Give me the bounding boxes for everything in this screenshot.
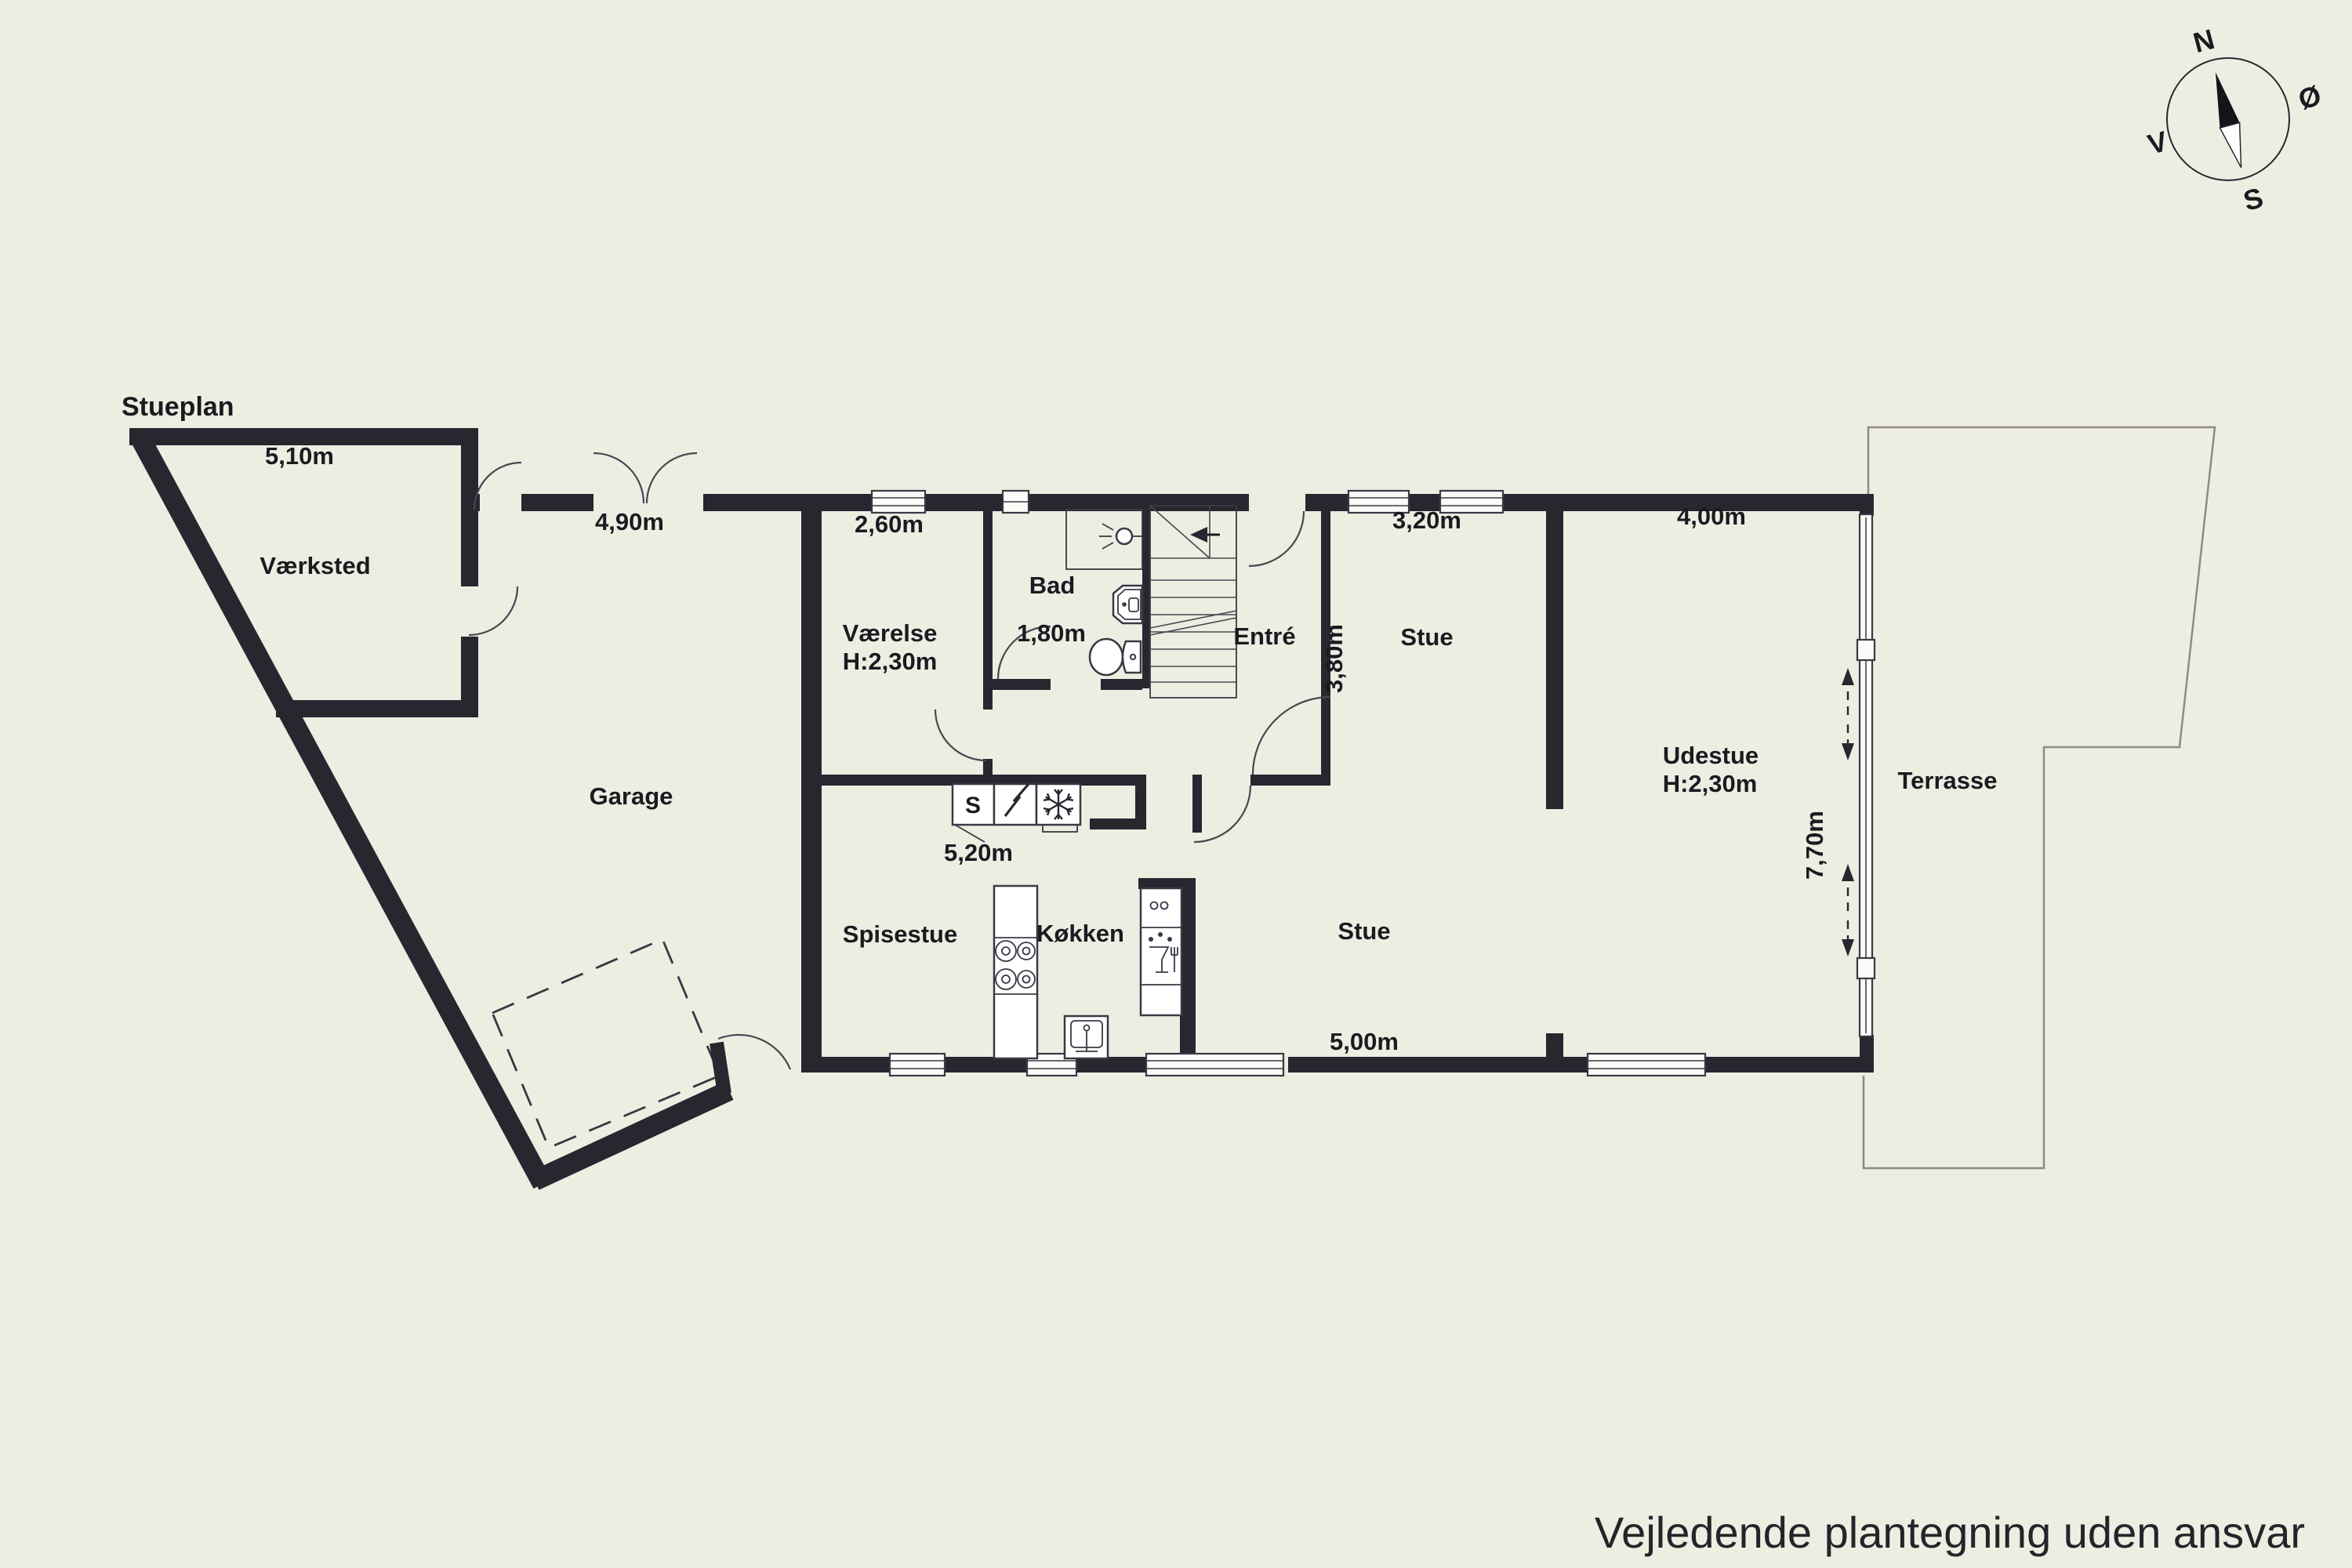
disclaimer-text: Vejledende plantegning uden ansvar bbox=[1595, 1508, 2305, 1557]
room-label-garage: Garage bbox=[590, 782, 673, 810]
compass-west-label: V bbox=[2144, 125, 2171, 161]
dim-spisestue-width: 5,20m bbox=[944, 839, 1013, 866]
window-icon bbox=[1146, 1054, 1283, 1076]
garage-side-door-arc bbox=[474, 463, 521, 510]
window-icon bbox=[1588, 1054, 1705, 1076]
room-label-vaerelse: Værelse bbox=[843, 619, 938, 647]
room-label-bad: Bad bbox=[1029, 572, 1076, 599]
terrasse-outline bbox=[1864, 427, 2215, 1168]
room-label-vaerksted: Værksted bbox=[260, 552, 370, 579]
window-icon bbox=[890, 1054, 945, 1076]
compass-south-label: S bbox=[2240, 181, 2267, 217]
dim-stue-lower-width: 5,00m bbox=[1330, 1028, 1399, 1055]
dim-udestue-width: 4,00m bbox=[1677, 503, 1746, 530]
entry-door-arc bbox=[1249, 511, 1304, 566]
stairs-direction-arrow-icon bbox=[1190, 527, 1220, 543]
room-label-terrasse: Terrasse bbox=[1898, 767, 1998, 794]
garage-double-door-right-arc bbox=[647, 453, 697, 503]
dim-garage-width: 4,90m bbox=[595, 508, 664, 535]
stue-door-arc bbox=[1253, 697, 1330, 775]
compass-rose-icon: N Ø S V bbox=[2144, 23, 2325, 217]
sink-icon bbox=[1113, 586, 1142, 623]
window-icon bbox=[872, 491, 925, 513]
dim-vaerelse-width: 2,60m bbox=[855, 510, 924, 538]
hall-door-arc bbox=[1194, 786, 1250, 842]
bathroom-fixtures bbox=[1066, 510, 1142, 675]
ceiling-vaerelse: H:2,30m bbox=[843, 648, 938, 675]
appliance-icons: S bbox=[953, 784, 1080, 842]
vaerelse-door-arc bbox=[935, 710, 986, 760]
window-icon bbox=[1003, 491, 1029, 513]
compass-east-label: Ø bbox=[2295, 79, 2325, 116]
toilet-icon bbox=[1090, 639, 1141, 675]
kitchen-counter-right bbox=[1141, 888, 1181, 1015]
dim-stue-upper-depth: 3,80m bbox=[1320, 624, 1348, 693]
room-label-udestue: Udestue bbox=[1663, 742, 1759, 769]
floor-plan: S N Ø S V bbox=[0, 0, 2352, 1568]
dim-bad-width: 1,80m bbox=[1017, 619, 1086, 647]
labels-layer: Stueplan Værksted 5,10m Garage 4,90m Vær… bbox=[122, 392, 2305, 1557]
page-title: Stueplan bbox=[122, 392, 234, 422]
sliding-door-arrows-icon bbox=[1842, 668, 1854, 956]
shower-icon bbox=[1066, 510, 1142, 569]
garage-exit-door-arc bbox=[718, 1035, 790, 1069]
room-label-stue-upper: Stue bbox=[1400, 623, 1453, 651]
kitchen-counter-left bbox=[994, 886, 1037, 1058]
doors-layer bbox=[469, 453, 1330, 1069]
compass-north-label: N bbox=[2190, 23, 2218, 59]
kitchen-fixtures bbox=[994, 886, 1181, 1058]
dim-vaerksted-width: 5,10m bbox=[265, 442, 334, 470]
room-label-koekken: Køkken bbox=[1036, 920, 1124, 947]
sliding-glass-wall bbox=[1857, 514, 1875, 1036]
storage-cabinet-label: S bbox=[965, 793, 981, 818]
room-label-stue-lower: Stue bbox=[1338, 917, 1390, 945]
garage-double-door-left-arc bbox=[593, 453, 644, 503]
room-label-entre: Entré bbox=[1233, 622, 1295, 650]
kitchen-sink-icon bbox=[1065, 1016, 1108, 1058]
room-label-spisestue: Spisestue bbox=[843, 920, 957, 948]
stairs bbox=[1150, 506, 1236, 698]
dim-udestue-depth: 7,70m bbox=[1801, 811, 1828, 880]
vaerksted-door-arc bbox=[469, 586, 517, 635]
dim-stue-upper-width: 3,20m bbox=[1392, 506, 1461, 534]
ceiling-udestue: H:2,30m bbox=[1663, 770, 1758, 797]
